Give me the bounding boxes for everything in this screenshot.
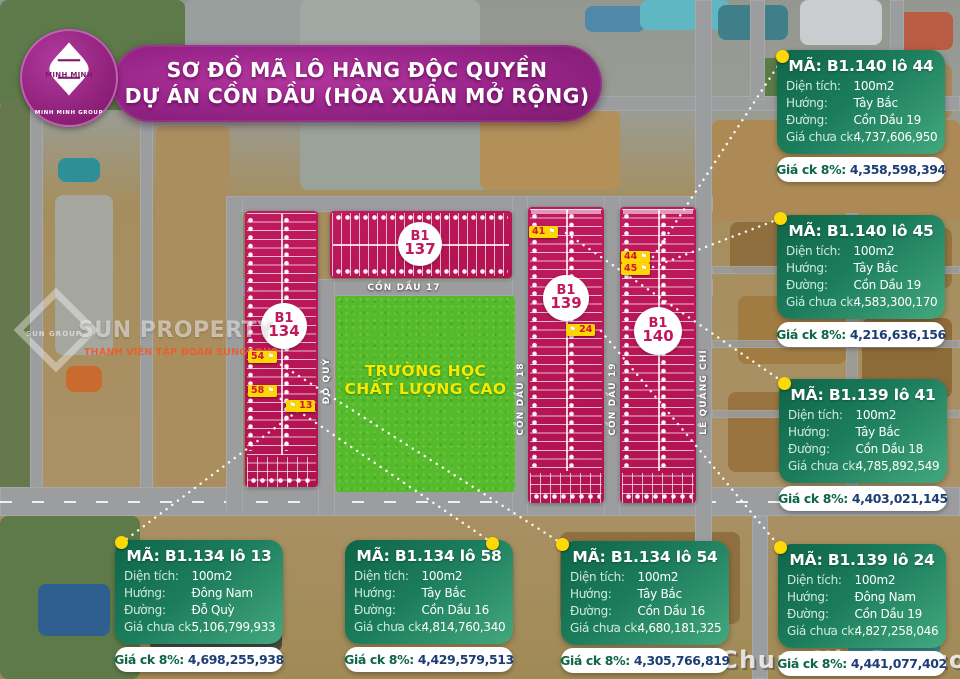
flag-icon: ⚑ bbox=[267, 385, 274, 397]
row-value: Cồn Dầu 16 bbox=[638, 603, 721, 620]
card-panel: MÃ: B1.139 lô 41 Diện tích:100m2 Hướng:T… bbox=[779, 379, 947, 483]
lot-tag-number: 44 bbox=[624, 251, 637, 263]
card-anchor-dot bbox=[556, 538, 569, 551]
discount-value: 4,216,636,156 bbox=[850, 327, 946, 342]
discount-label: Giá ck 8%: bbox=[778, 491, 848, 506]
row-value: 100m2 bbox=[854, 78, 937, 95]
card-anchor-dot bbox=[776, 50, 789, 63]
card-rows: Diện tích:100m2 Hướng:Đông Nam Đường:Cồn… bbox=[787, 572, 937, 640]
row-value: Cồn Dầu 19 bbox=[855, 606, 938, 623]
flag-icon: ⚑ bbox=[267, 351, 274, 363]
info-card-b1139-lo41: MÃ: B1.139 lô 41 Diện tích:100m2 Hướng:T… bbox=[779, 379, 947, 511]
aerial-patch bbox=[0, 100, 30, 510]
row-value: Tây Bắc bbox=[856, 424, 939, 441]
block-label-b1-137: B1 137 bbox=[398, 222, 442, 266]
title-line2: DỰ ÁN CỒN DẦU (HÒA XUÂN MỞ RỘNG) bbox=[125, 84, 590, 110]
discount-value: 4,358,598,394 bbox=[850, 162, 946, 177]
discount-value: 4,441,077,402 bbox=[851, 656, 947, 671]
lot-tag-24: ⚑24 bbox=[566, 324, 595, 336]
discount-price-pill: Giá ck 8%: 4,441,077,402 bbox=[778, 651, 946, 676]
row-label: Đường: bbox=[787, 606, 855, 623]
row-label: Hướng: bbox=[124, 585, 192, 602]
row-value: 4,737,606,950 bbox=[854, 129, 937, 146]
card-anchor-dot bbox=[486, 537, 499, 550]
title-line1: SƠ ĐỒ MÃ LÔ HÀNG ĐỘC QUYỀN bbox=[167, 58, 548, 84]
block-b1-139: B1 139 bbox=[528, 207, 604, 503]
title-banner: SƠ ĐỒ MÃ LÔ HÀNG ĐỘC QUYỀN DỰ ÁN CỒN DẦU… bbox=[112, 45, 602, 122]
card-panel: MÃ: B1.134 lô 54 Diện tích:100m2 Hướng:T… bbox=[561, 541, 729, 645]
discount-value: 4,698,255,938 bbox=[188, 652, 284, 667]
lot-number-dots bbox=[334, 268, 508, 275]
row-value: Tây Bắc bbox=[854, 260, 937, 277]
row-value: Cồn Dầu 16 bbox=[422, 602, 505, 619]
lot-number-dots bbox=[249, 477, 314, 484]
row-label: Giá chưa ck: bbox=[354, 619, 422, 636]
card-rows: Diện tích:100m2 Hướng:Tây Bắc Đường:Cồn … bbox=[786, 243, 936, 311]
discount-label: Giá ck 8%: bbox=[777, 656, 847, 671]
card-title: MÃ: B1.140 lô 44 bbox=[786, 57, 936, 75]
discount-price-pill: Giá ck 8%: 4,403,021,145 bbox=[779, 486, 947, 511]
row-label: Đường: bbox=[354, 602, 422, 619]
card-rows: Diện tích:100m2 Hướng:Đông Nam Đường:Đỗ … bbox=[124, 568, 274, 636]
discount-label: Giá ck 8%: bbox=[560, 653, 630, 668]
logo-badge: MINH MINH MINH MINH GROUP bbox=[20, 29, 118, 127]
row-label: Hướng: bbox=[570, 586, 638, 603]
block-label-b1-140: B1 140 bbox=[634, 307, 682, 355]
logo-lens-icon bbox=[48, 40, 90, 98]
card-panel: MÃ: B1.140 lô 45 Diện tích:100m2 Hướng:T… bbox=[777, 215, 945, 319]
school-label-line1: TRƯỜNG HỌC bbox=[365, 362, 487, 380]
discount-label: Giá ck 8%: bbox=[114, 652, 184, 667]
lot-tag-13: ⚑13 bbox=[286, 400, 315, 412]
lot-number-dots bbox=[531, 212, 538, 467]
logo-group-name: MINH MINH GROUP bbox=[22, 110, 116, 116]
row-label: Đường: bbox=[786, 112, 854, 129]
aerial-patch bbox=[585, 6, 645, 32]
row-label: Giá chưa ck: bbox=[787, 623, 855, 640]
lot-tag-number: 54 bbox=[251, 351, 264, 363]
flag-icon: ⚑ bbox=[640, 263, 647, 275]
sun-property-watermark: SUN PROPERTY bbox=[78, 318, 274, 343]
info-card-b1139-lo24: MÃ: B1.139 lô 24 Diện tích:100m2 Hướng:Đ… bbox=[778, 544, 946, 676]
flag-icon: ⚑ bbox=[289, 400, 296, 412]
card-title: MÃ: B1.134 lô 13 bbox=[124, 547, 274, 565]
info-card-b1134-lo13: MÃ: B1.134 lô 13 Diện tích:100m2 Hướng:Đ… bbox=[115, 540, 283, 672]
row-value: 100m2 bbox=[192, 568, 275, 585]
card-rows: Diện tích:100m2 Hướng:Tây Bắc Đường:Cồn … bbox=[788, 407, 938, 475]
row-label: Giá chưa ck: bbox=[786, 129, 854, 146]
discount-price-pill: Giá ck 8%: 4,305,766,819 bbox=[561, 648, 729, 673]
row-value: 100m2 bbox=[856, 407, 939, 424]
discount-price-pill: Giá ck 8%: 4,216,636,156 bbox=[777, 322, 945, 347]
lot-tag-54: 54⚑ bbox=[248, 351, 277, 363]
row-label: Diện tích: bbox=[788, 407, 856, 424]
discount-value: 4,429,579,513 bbox=[418, 652, 514, 667]
row-value: Cồn Dầu 19 bbox=[854, 277, 937, 294]
street-label-con-dau-19: CỒN DẦU 19 bbox=[608, 362, 618, 435]
row-value: Cồn Dầu 19 bbox=[854, 112, 937, 129]
card-panel: MÃ: B1.139 lô 24 Diện tích:100m2 Hướng:Đ… bbox=[778, 544, 946, 648]
row-label: Giá chưa ck: bbox=[124, 619, 192, 636]
lot-tag-number: 24 bbox=[579, 324, 592, 336]
lot-number-dots bbox=[334, 214, 508, 221]
row-value: Đông Nam bbox=[855, 589, 938, 606]
row-label: Diện tích: bbox=[786, 243, 854, 260]
road-left-vertical-2 bbox=[140, 108, 153, 490]
lot-tag-44: 44⚑ bbox=[621, 251, 650, 263]
street-label-do-quy: ĐỖ QUỲ bbox=[322, 358, 332, 404]
info-card-b1134-lo54: MÃ: B1.134 lô 54 Diện tích:100m2 Hướng:T… bbox=[561, 541, 729, 673]
block-label-b1-139: B1 139 bbox=[543, 275, 589, 321]
card-title: MÃ: B1.139 lô 24 bbox=[787, 551, 937, 569]
lot-tag-number: 58 bbox=[251, 385, 264, 397]
row-label: Diện tích: bbox=[570, 569, 638, 586]
discount-label: Giá ck 8%: bbox=[344, 652, 414, 667]
row-value: 4,680,181,325 bbox=[638, 620, 721, 637]
discount-value: 4,403,021,145 bbox=[852, 491, 948, 506]
lot-tag-45: 45⚑ bbox=[621, 263, 650, 275]
row-label: Giá chưa ck: bbox=[570, 620, 638, 637]
road-le-quang-chi bbox=[695, 0, 712, 545]
row-value: Đỗ Quỳ bbox=[192, 602, 275, 619]
card-panel: MÃ: B1.140 lô 44 Diện tích:100m2 Hướng:T… bbox=[777, 50, 945, 154]
row-value: 5,106,799,933 bbox=[192, 619, 275, 636]
row-value: Đông Nam bbox=[192, 585, 275, 602]
flag-icon: ⚑ bbox=[640, 251, 647, 263]
block-b1-137: B1 137 bbox=[330, 211, 512, 278]
row-label: Giá chưa ck: bbox=[788, 458, 856, 475]
row-value: Cồn Dầu 18 bbox=[856, 441, 939, 458]
card-anchor-dot bbox=[774, 541, 787, 554]
poster-stage: B1 137 B1 134 B1 139 bbox=[0, 0, 960, 679]
lot-tag-number: 45 bbox=[624, 263, 637, 275]
school-label-line2: CHẤT LƯỢNG CAO bbox=[345, 380, 507, 398]
row-value: Tây Bắc bbox=[638, 586, 721, 603]
block-label-line2: 139 bbox=[550, 297, 581, 311]
row-label: Diện tích: bbox=[354, 568, 422, 585]
row-label: Đường: bbox=[788, 441, 856, 458]
school-area: TRƯỜNG HỌC CHẤT LƯỢNG CAO bbox=[336, 296, 515, 492]
row-value: 100m2 bbox=[854, 243, 937, 260]
discount-price-pill: Giá ck 8%: 4,429,579,513 bbox=[345, 647, 513, 672]
card-rows: Diện tích:100m2 Hướng:Tây Bắc Đường:Cồn … bbox=[570, 569, 720, 637]
flag-icon: ⚑ bbox=[548, 226, 555, 238]
row-label: Hướng: bbox=[787, 589, 855, 606]
lot-number-dots bbox=[568, 212, 575, 467]
row-label: Hướng: bbox=[786, 260, 854, 277]
row-value: 4,827,258,046 bbox=[855, 623, 938, 640]
aerial-patch bbox=[480, 110, 620, 190]
aerial-patch bbox=[156, 126, 230, 488]
info-card-b1140-lo44: MÃ: B1.140 lô 44 Diện tích:100m2 Hướng:T… bbox=[777, 50, 945, 182]
card-panel: MÃ: B1.134 lô 58 Diện tích:100m2 Hướng:T… bbox=[345, 540, 513, 644]
aerial-patch bbox=[66, 366, 102, 392]
aerial-patch bbox=[38, 584, 110, 636]
card-rows: Diện tích:100m2 Hướng:Tây Bắc Đường:Cồn … bbox=[786, 78, 936, 146]
aerial-patch bbox=[58, 158, 100, 182]
card-title: MÃ: B1.140 lô 45 bbox=[786, 222, 936, 240]
block-label-line2: 137 bbox=[404, 243, 435, 257]
info-card-b1140-lo45: MÃ: B1.140 lô 45 Diện tích:100m2 Hướng:T… bbox=[777, 215, 945, 347]
lot-number-dots bbox=[532, 493, 600, 500]
lot-number-dots bbox=[624, 493, 692, 500]
card-title: MÃ: B1.134 lô 54 bbox=[570, 548, 720, 566]
card-anchor-dot bbox=[778, 377, 791, 390]
row-value: Tây Bắc bbox=[422, 585, 505, 602]
road-top-vertical bbox=[750, 0, 765, 100]
row-label: Hướng: bbox=[788, 424, 856, 441]
row-label: Hướng: bbox=[354, 585, 422, 602]
lot-tag-number: 13 bbox=[299, 400, 312, 412]
aerial-patch bbox=[800, 0, 882, 45]
row-value: 100m2 bbox=[422, 568, 505, 585]
info-card-b1134-lo58: MÃ: B1.134 lô 58 Diện tích:100m2 Hướng:T… bbox=[345, 540, 513, 672]
street-label-con-dau-17: CỒN DẦU 17 bbox=[367, 283, 440, 293]
row-label: Giá chưa ck: bbox=[786, 294, 854, 311]
discount-value: 4,305,766,819 bbox=[634, 653, 730, 668]
discount-price-pill: Giá ck 8%: 4,698,255,938 bbox=[115, 647, 283, 672]
street-label-le-quang-chi: LÊ QUẢNG CHÍ bbox=[699, 349, 709, 435]
row-label: Đường: bbox=[570, 603, 638, 620]
row-label: Diện tích: bbox=[787, 572, 855, 589]
row-value: 4,583,300,170 bbox=[854, 294, 937, 311]
row-value: 100m2 bbox=[638, 569, 721, 586]
card-rows: Diện tích:100m2 Hướng:Tây Bắc Đường:Cồn … bbox=[354, 568, 504, 636]
discount-price-pill: Giá ck 8%: 4,358,598,394 bbox=[777, 157, 945, 182]
logo-name: MINH MINH bbox=[22, 71, 116, 79]
row-label: Đường: bbox=[124, 602, 192, 619]
card-anchor-dot bbox=[774, 212, 787, 225]
row-label: Diện tích: bbox=[786, 78, 854, 95]
row-label: Diện tích: bbox=[124, 568, 192, 585]
discount-label: Giá ck 8%: bbox=[776, 327, 846, 342]
row-value: 4,785,892,549 bbox=[856, 458, 939, 475]
lot-tag-number: 41 bbox=[532, 226, 545, 238]
row-value: 4,814,760,340 bbox=[422, 619, 505, 636]
aerial-patch bbox=[640, 0, 730, 30]
lot-tag-58: 58⚑ bbox=[248, 385, 277, 397]
lot-tag-41: 41⚑ bbox=[529, 226, 558, 238]
card-title: MÃ: B1.134 lô 58 bbox=[354, 547, 504, 565]
flag-icon: ⚑ bbox=[569, 324, 576, 336]
card-anchor-dot bbox=[115, 536, 128, 549]
road-con-dau-19 bbox=[604, 196, 620, 516]
discount-label: Giá ck 8%: bbox=[776, 162, 846, 177]
row-value: Tây Bắc bbox=[854, 95, 937, 112]
row-value: 100m2 bbox=[855, 572, 938, 589]
card-title: MÃ: B1.139 lô 41 bbox=[788, 386, 938, 404]
block-label-line2: 140 bbox=[642, 330, 673, 344]
row-label: Đường: bbox=[786, 277, 854, 294]
card-panel: MÃ: B1.134 lô 13 Diện tích:100m2 Hướng:Đ… bbox=[115, 540, 283, 644]
row-label: Hướng: bbox=[786, 95, 854, 112]
street-label-con-dau-18: CỒN DẦU 18 bbox=[516, 362, 526, 435]
